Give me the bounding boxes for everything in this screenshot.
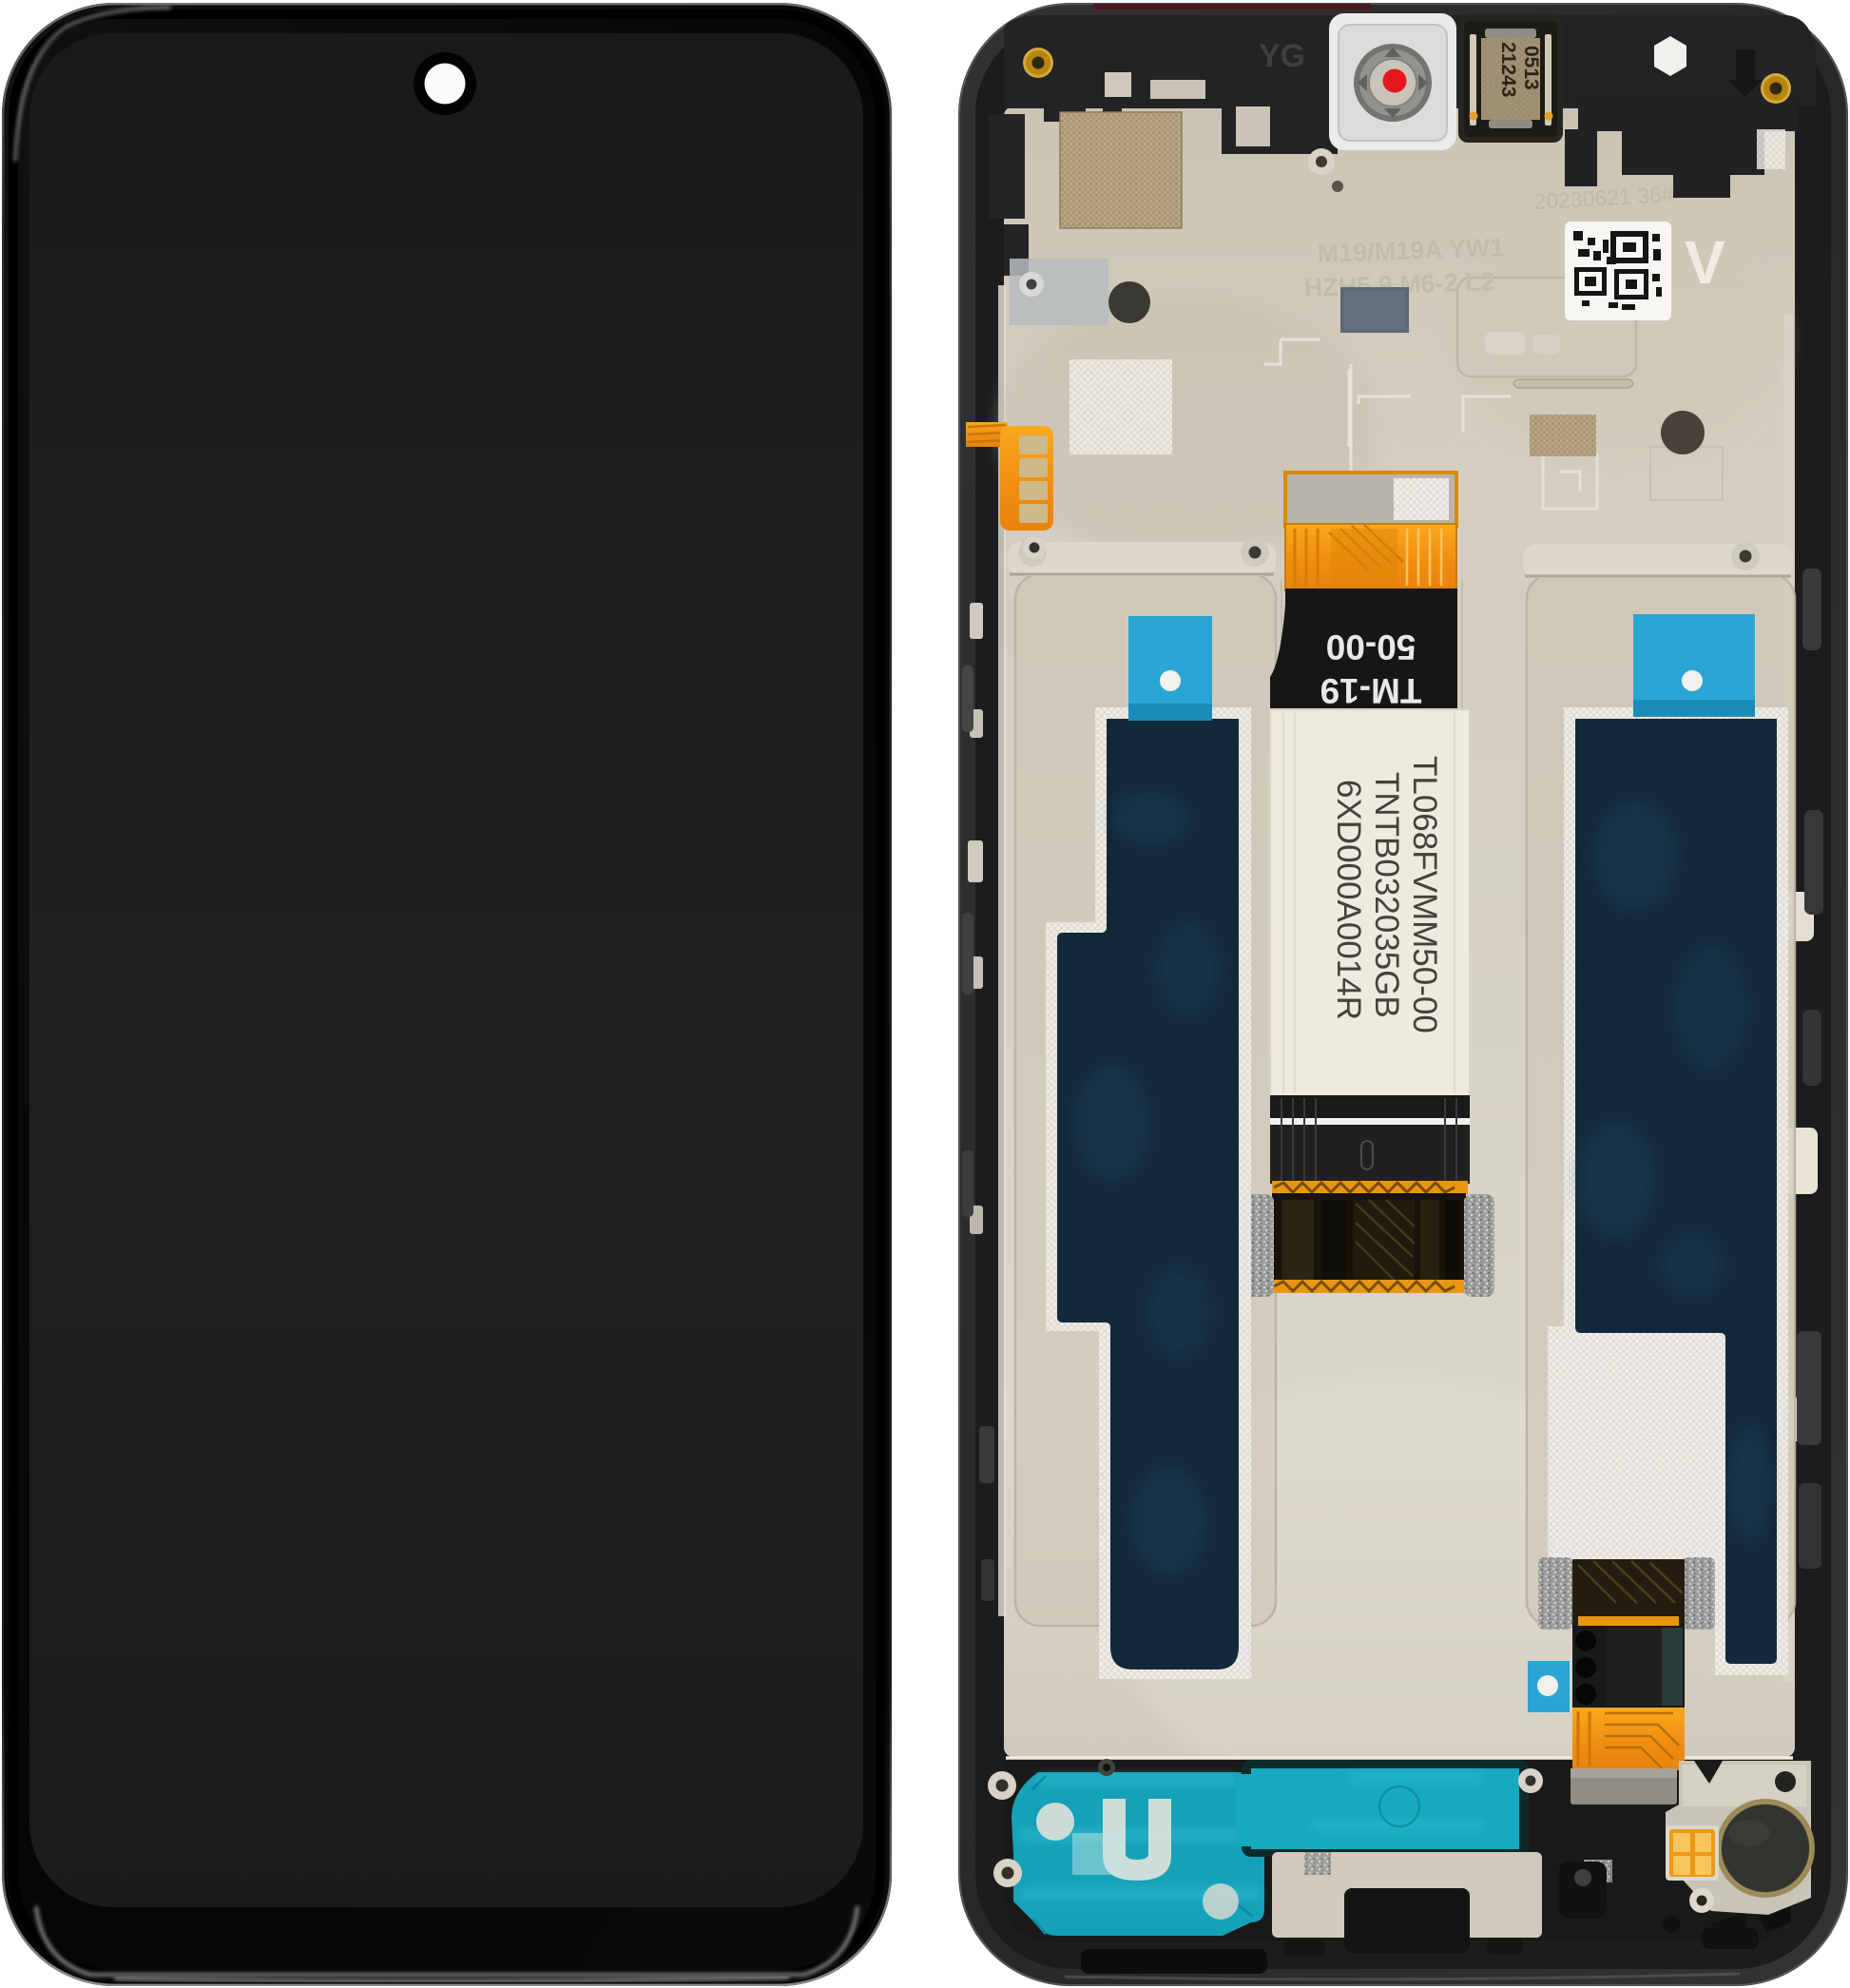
svg-text:TNTB032035GB: TNTB032035GB	[1368, 772, 1405, 1018]
svg-text:50-00: 50-00	[1326, 627, 1416, 666]
svg-text:V: V	[1685, 228, 1725, 297]
svg-text:21243: 21243	[1497, 42, 1519, 97]
svg-text:6XD000A0014R: 6XD000A0014R	[1330, 780, 1367, 1020]
svg-text:TL068FVMM50-00: TL068FVMM50-00	[1406, 756, 1443, 1033]
svg-text:TM-19: TM-19	[1320, 671, 1422, 710]
svg-text:0513: 0513	[1520, 46, 1542, 90]
svg-text:YG: YG	[1259, 38, 1305, 74]
